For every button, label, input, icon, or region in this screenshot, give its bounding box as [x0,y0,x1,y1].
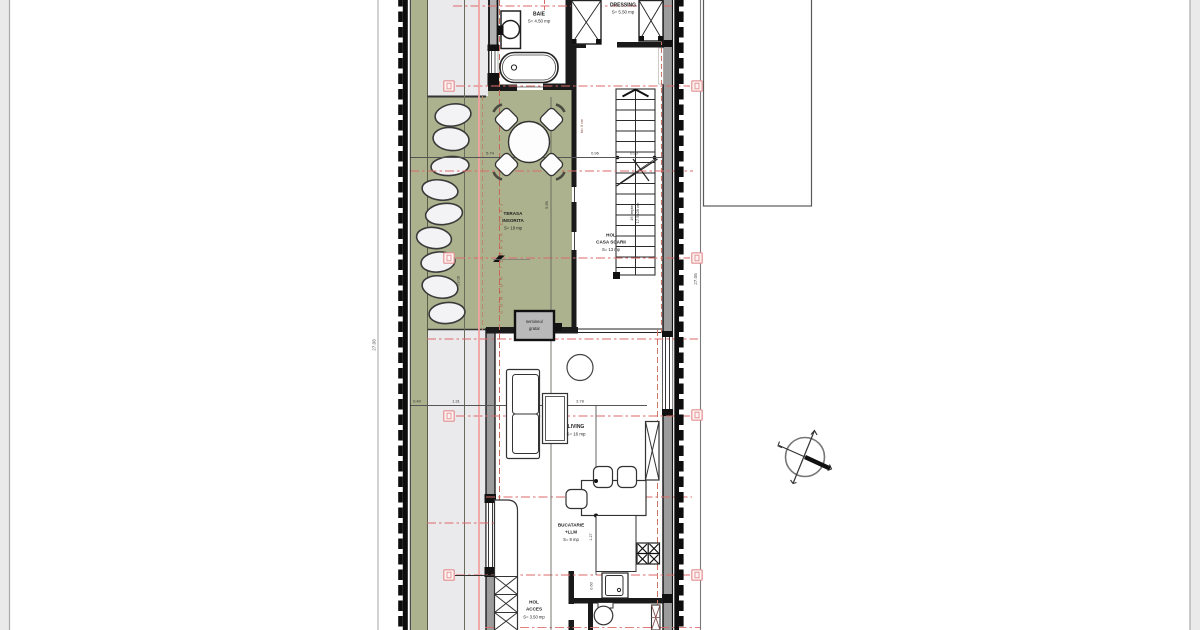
svg-text:HOL: HOL [606,233,616,238]
svg-text:S= 8 mp: S= 8 mp [563,537,579,542]
svg-text:0.96: 0.96 [591,151,600,156]
svg-text:CASA SCARII: CASA SCARII [596,240,626,245]
svg-text:hi= 0 cm: hi= 0 cm [580,119,584,133]
svg-text:S= 4.50 mp: S= 4.50 mp [528,19,551,24]
svg-text:0.90: 0.90 [630,151,639,156]
svg-text:0.40: 0.40 [413,399,422,404]
svg-text:27.06: 27.06 [693,273,698,285]
svg-text:S= 16 mp: S= 16 mp [567,432,586,437]
svg-text:5.95: 5.95 [545,201,549,208]
svg-text:23.08: 23.08 [456,275,461,286]
svg-text:+LLM: +LLM [565,530,577,535]
svg-text:27.08: 27.08 [372,339,377,351]
svg-text:BUCATARIE: BUCATARIE [558,523,584,528]
svg-text:1.31: 1.31 [452,399,461,404]
svg-text:gratar: gratar [529,326,541,331]
svg-text:INSORITA: INSORITA [502,218,524,223]
svg-text:0.60: 0.60 [590,582,594,589]
svg-text:TERASA: TERASA [504,211,524,216]
svg-text:LIVING: LIVING [568,424,585,430]
svg-text:5.74: 5.74 [486,151,495,156]
svg-text:ACCES: ACCES [526,607,542,612]
svg-text:semineu/: semineu/ [526,319,544,324]
svg-text:S= 5.50 mp: S= 5.50 mp [612,10,635,15]
svg-text:S= 3.50 mp: S= 3.50 mp [523,615,545,620]
svg-text:S= 13 mp: S= 13 mp [602,247,621,252]
svg-text:16 trepte: 16 trepte [629,204,634,221]
svg-text:1.27: 1.27 [589,533,593,540]
svg-text:S= 19 mp: S= 19 mp [504,226,523,231]
svg-text:3.78: 3.78 [576,399,585,404]
svg-text:HOL: HOL [529,600,539,605]
svg-text:BAIE: BAIE [533,12,546,18]
svg-text:DRESSING: DRESSING [610,3,636,9]
svg-text:17.5x28 cm: 17.5x28 cm [635,202,640,223]
